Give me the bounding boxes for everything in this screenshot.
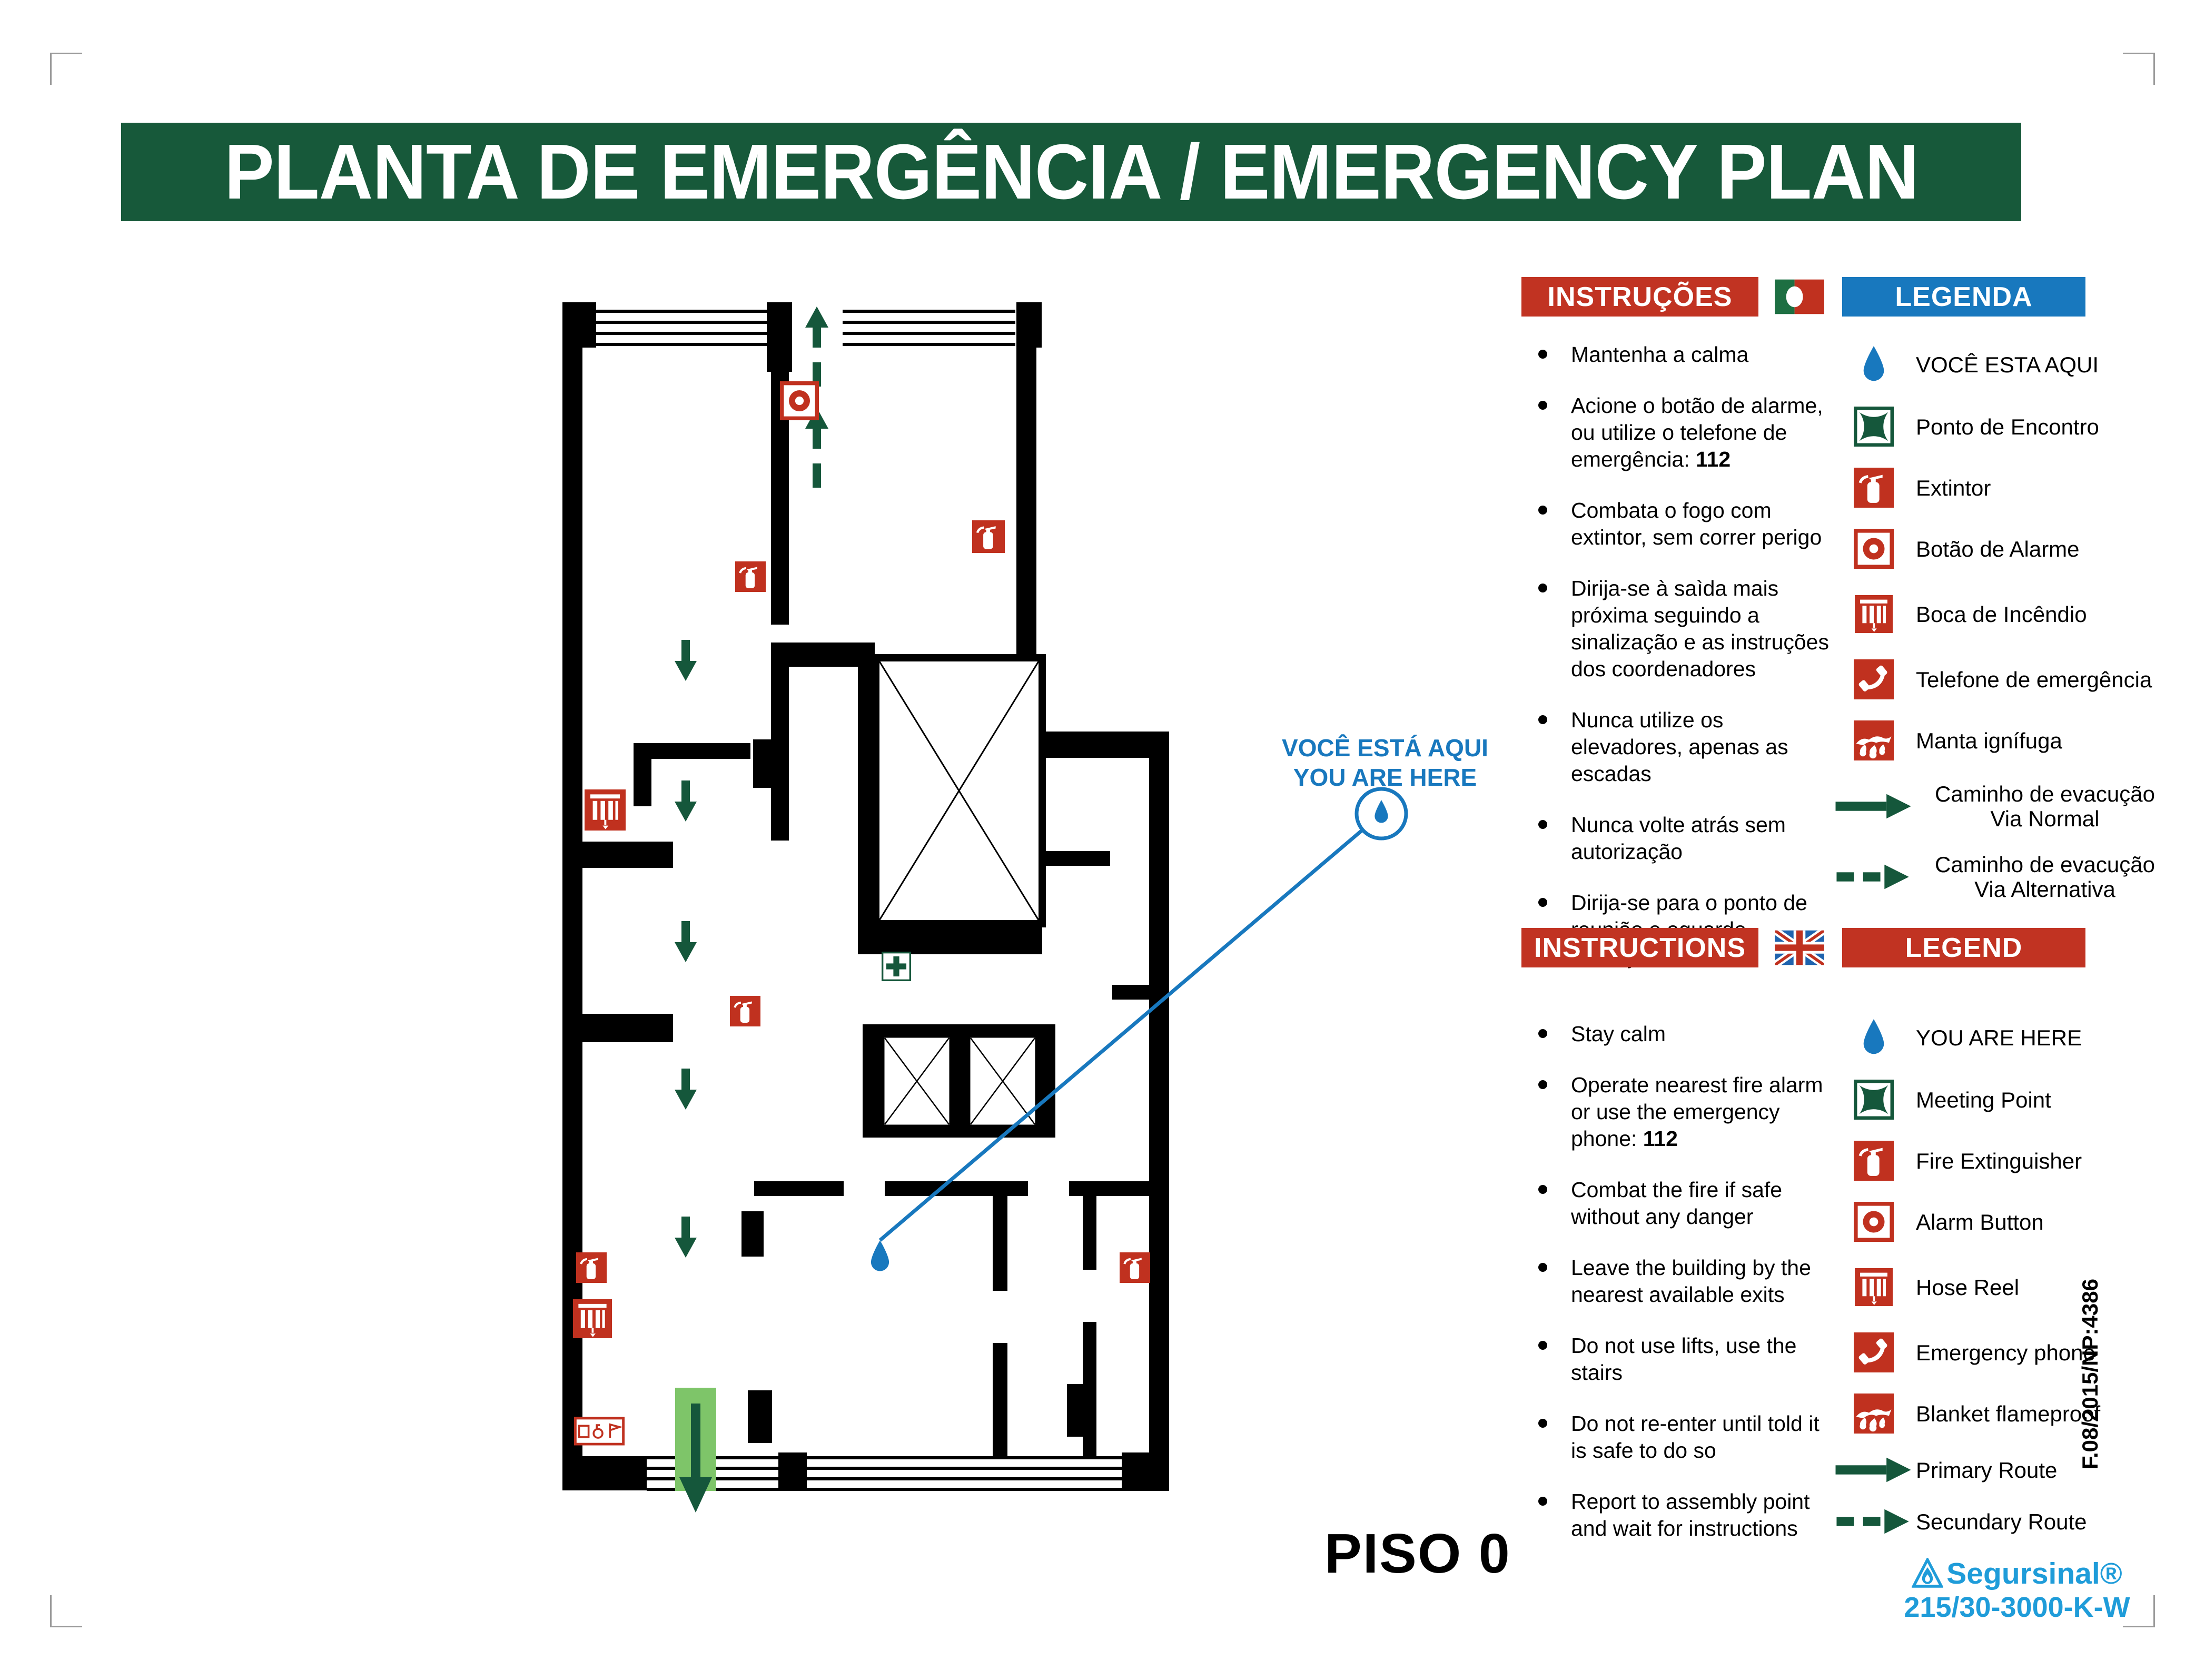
- instruction-item: Do not use lifts, use the stairs: [1530, 1332, 1838, 1386]
- instructions-en-header: INSTRUCTIONS: [1521, 928, 1758, 967]
- legend-item: Alarm Button: [1832, 1202, 2195, 1242]
- first-aid-icon: [883, 953, 911, 981]
- instructions-en-list: Stay calm Operate nearest fire alarm or …: [1530, 1021, 1838, 1566]
- emergency-plan-poster: PLANTA DE EMERGÊNCIA / EMERGENCY PLAN: [0, 0, 2205, 1680]
- fire-extinguisher-icon: [1120, 1252, 1150, 1283]
- product-code: 215/30-3000-K-W: [1843, 1591, 2191, 1624]
- callout-en: YOU ARE HERE: [1259, 763, 1511, 792]
- instruction-item: Do not re-enter until told it is safe to…: [1530, 1410, 1838, 1464]
- hose-reel-icon: [1855, 1263, 1893, 1311]
- instruction-item: Combat the fire if safe without any dang…: [1530, 1177, 1838, 1230]
- legend-item: Emergency phone: [1832, 1332, 2195, 1372]
- fire-extinguisher-icon: [730, 996, 760, 1026]
- secondary-route-arrow-icon: [1834, 1506, 1913, 1537]
- meeting-point-icon: [1854, 1080, 1894, 1120]
- emergency-phone-icon: [1854, 659, 1894, 699]
- title-banner: PLANTA DE EMERGÊNCIA / EMERGENCY PLAN: [121, 123, 2021, 221]
- equipment-sign-icon: [575, 1418, 623, 1444]
- you-are-here-icon: [1860, 1016, 1887, 1059]
- instruction-item: Leave the building by the nearest availa…: [1530, 1254, 1838, 1308]
- uk-flag-icon: [1775, 928, 1824, 967]
- floor-plan: [548, 295, 1443, 1559]
- document-code: F.08/2015/NP:4386: [2078, 1317, 2103, 1469]
- instruction-item: Stay calm: [1530, 1021, 1838, 1047]
- hose-reel-icon: [573, 1299, 612, 1338]
- instructions-pt-list: Mantenha a calma Acione o botão de alarm…: [1530, 341, 1838, 994]
- legend-item: Telefone de emergência: [1832, 659, 2195, 699]
- segursinal-logo-icon: [1912, 1558, 1943, 1589]
- instruction-item: Mantenha a calma: [1530, 341, 1838, 368]
- legend-item: Manta ignífuga: [1832, 720, 2195, 760]
- fire-extinguisher-icon: [1854, 468, 1894, 508]
- brand-footer: Segursinal® 215/30-3000-K-W: [1843, 1556, 2191, 1624]
- legend-item: Primary Route: [1832, 1455, 2195, 1485]
- legend-en: YOU ARE HERE Meeting Point Fire Extingui…: [1832, 1016, 2195, 1558]
- you-are-here-icon: [1860, 343, 1887, 386]
- alarm-button-icon: [780, 381, 819, 420]
- legend-pt-header: LEGENDA: [1842, 277, 2085, 317]
- fire-blanket-icon: [1854, 720, 1894, 760]
- crop-mark: [2123, 53, 2155, 85]
- route-arrows: [675, 307, 828, 1258]
- instruction-item: Report to assembly point and wait for in…: [1530, 1488, 1838, 1542]
- hose-reel-icon: [585, 789, 626, 831]
- legend-item: Meeting Point: [1832, 1080, 2195, 1120]
- portugal-flag-icon: [1775, 277, 1824, 317]
- page-title: PLANTA DE EMERGÊNCIA / EMERGENCY PLAN: [224, 127, 1919, 217]
- legend-item: Blanket flameproof: [1832, 1394, 2195, 1434]
- legend-item: Extintor: [1832, 468, 2195, 508]
- instruction-item: Combata o fogo com extintor, sem correr …: [1530, 497, 1838, 551]
- legend-item: Ponto de Encontro: [1832, 407, 2195, 447]
- legend-item: Secundary Route: [1832, 1506, 2195, 1537]
- legend-item: Botão de Alarme: [1832, 529, 2195, 569]
- fire-extinguisher-icon: [735, 561, 766, 592]
- alarm-button-icon: [1854, 1202, 1894, 1242]
- secondary-route-arrow-icon: [1834, 862, 1913, 892]
- instruction-item: Acione o botão de alarme, ou utilize o t…: [1530, 392, 1838, 473]
- instruction-item: Nunca utilize os elevadores, apenas as e…: [1530, 707, 1838, 787]
- legend-en-header: LEGEND: [1842, 928, 2085, 967]
- primary-route-arrow-icon: [1834, 1455, 1913, 1485]
- crop-mark: [50, 53, 82, 85]
- fire-extinguisher-icon: [576, 1252, 607, 1283]
- alarm-button-icon: [1854, 529, 1894, 569]
- legend-item: Caminho de evacuçãoVia Alternativa: [1832, 852, 2195, 902]
- legend-item: Fire Extinguisher: [1832, 1141, 2195, 1181]
- crop-mark: [50, 1595, 82, 1627]
- fire-extinguisher-icon: [972, 520, 1005, 553]
- legend-item: Caminho de evacuçãoVia Normal: [1832, 782, 2195, 831]
- legend-item: YOU ARE HERE: [1832, 1016, 2195, 1059]
- instruction-item: Nunca volte atrás sem autorização: [1530, 812, 1838, 865]
- walls: [562, 302, 1169, 1490]
- instruction-item: Operate nearest fire alarm or use the em…: [1530, 1072, 1838, 1152]
- you-are-here-callout: VOCÊ ESTÁ AQUI YOU ARE HERE: [1259, 733, 1511, 792]
- brand-name: Segursinal®: [1946, 1556, 2122, 1591]
- legend-item: Boca de Incêndio: [1832, 590, 2195, 638]
- elevator-shaft: [876, 658, 1042, 924]
- instruction-item: Dirija-se à saìda mais próxima seguindo …: [1530, 575, 1838, 683]
- legend-pt: VOCÊ ESTA AQUI Ponto de Encontro Extinto…: [1832, 343, 2195, 923]
- legend-item: VOCÊ ESTA AQUI: [1832, 343, 2195, 386]
- meeting-point-icon: [1854, 407, 1894, 447]
- fire-blanket-icon: [1854, 1394, 1894, 1434]
- floor-label: PISO 0: [1324, 1522, 1511, 1586]
- emergency-phone-icon: [1854, 1332, 1894, 1372]
- primary-route-arrow-icon: [1834, 791, 1913, 822]
- hose-reel-icon: [1855, 590, 1893, 638]
- callout-pt: VOCÊ ESTÁ AQUI: [1259, 733, 1511, 763]
- you-are-here-icon: [871, 1240, 889, 1271]
- legend-item: Hose Reel: [1832, 1263, 2195, 1311]
- instructions-pt-header: INSTRUÇÕES: [1521, 277, 1758, 317]
- fire-extinguisher-icon: [1854, 1141, 1894, 1181]
